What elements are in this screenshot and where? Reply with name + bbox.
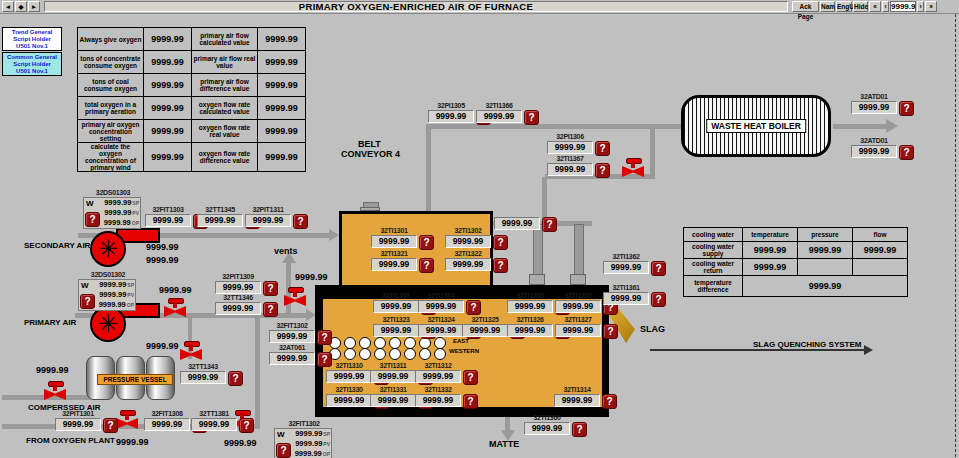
instrument-tag: 32AT061 — [269, 344, 315, 351]
value-display[interactable]: 9999.99 — [373, 324, 419, 337]
value-readout: 9999.99 — [159, 285, 192, 295]
common-general-script-holder[interactable]: Common General Script Holder U501 Nov.1 — [2, 52, 62, 76]
table-header: flow — [853, 228, 908, 242]
instrument-32TI1326: 32TI13269999.99? — [507, 316, 553, 342]
pager-prev-button[interactable]: ‹ — [882, 1, 889, 12]
instrument-32PI1305: 32PI13059999.99? — [428, 102, 474, 128]
instrument-tag: 32TI1330 — [326, 386, 372, 393]
value-display[interactable]: 9999.99 — [55, 418, 101, 431]
trend-general-script-holder[interactable]: Trend General Script Holder U501 Nov.1 — [2, 27, 62, 51]
instrument-32TI1311: 32TI13119999.99? — [370, 362, 416, 388]
holder-line: U501 Nov.1 — [3, 68, 61, 75]
value-display[interactable]: 9999.99 — [555, 300, 601, 313]
alarm-indicator[interactable]: ? — [419, 235, 434, 250]
uptake-flange — [529, 274, 545, 285]
oxygen-riser-pipe — [255, 316, 260, 429]
label-vents: vents — [274, 246, 298, 256]
alarm-indicator[interactable]: ? — [899, 145, 914, 160]
instrument-tag: 32TI1360 — [524, 414, 570, 421]
value-display[interactable]: 9999.99 — [462, 324, 508, 337]
pager-first-button[interactable]: « — [869, 1, 881, 12]
screen-edge-dashes — [955, 14, 956, 457]
table-label: cooling water return — [684, 259, 743, 276]
instrument-32TI1331: 32TI13319999.99? — [370, 386, 416, 412]
label-matte: MATTE — [489, 439, 519, 449]
instrument-32FIT1308: 32FIT13089999.99? — [144, 410, 190, 436]
controller-32DS01303[interactable]: 32DS01303W9999.99SP9999.99PV9999.99OP? — [83, 189, 143, 229]
oxygen-table-row: total oxygen in a primary aeration9999.9… — [78, 97, 306, 120]
instrument-tag: 32TT1381 — [191, 410, 237, 417]
controller-tag: 32DS01302 — [78, 271, 138, 278]
oxygen-table-row: calculate the oxygen concentration of pr… — [78, 143, 306, 172]
table-value: 9999.99 — [258, 143, 306, 172]
label-slag: SLAG — [640, 324, 665, 334]
table-value: 9999.99 — [258, 51, 306, 74]
table-value: 9999.99 — [853, 242, 908, 259]
table-value: 9999.99 — [144, 74, 192, 97]
alarm-indicator[interactable]: ? — [317, 330, 332, 345]
instrument-32TT1381: 32TT13819999.99? — [191, 410, 237, 436]
instrument-32TI1321: 32TI13219999.99? — [371, 250, 417, 276]
holder-line: Script Holder — [3, 36, 61, 43]
label-belt-2: CONVEYOR 4 — [341, 149, 400, 159]
instrument-tag: 32TI1367 — [547, 155, 593, 162]
title-bar: ◄ ◆ ► PRIMARY OXYGEN-ENRICHED AIR OF FUR… — [0, 0, 959, 14]
table-value: 9999.99 — [743, 242, 798, 259]
valve-icon[interactable] — [180, 341, 202, 360]
instrument-tag: 32TI1323 — [373, 316, 419, 323]
alarm-indicator[interactable]: ? — [228, 371, 243, 386]
instrument-32TI1304: 32TI13049999.99? — [418, 292, 464, 318]
cooling-water-table: cooling watertemperaturepressureflowcool… — [683, 227, 908, 297]
instrument-32AT061: 32AT0619999.99? — [269, 344, 315, 370]
value-display[interactable]: 9999.99 — [851, 145, 897, 158]
controller-32DS01302[interactable]: 32DS01302W9999.99SP9999.99PV9999.99OP? — [78, 271, 138, 311]
instrument-tag: 32FIT1303 — [145, 206, 191, 213]
instrument-tag: 32TI1322 — [445, 250, 491, 257]
label-belt-1: BELT — [358, 139, 381, 149]
instrument-tag: 32TI1361 — [603, 284, 649, 291]
engu-button[interactable]: EngU — [836, 1, 852, 12]
instrument-32TT1346: 32TT13469999.99? — [215, 294, 261, 320]
value-display[interactable]: 9999.99 — [476, 110, 522, 123]
instrument-32TI1332: 32TI13329999.99? — [415, 386, 461, 412]
holder-line: Common General — [3, 54, 61, 61]
cooling-table-row: temperature difference9999.99 — [684, 276, 908, 297]
alarm-indicator[interactable]: ? — [239, 418, 254, 433]
table-label: primary air flow real value — [192, 51, 258, 74]
value-display[interactable]: 9999.99 — [191, 418, 237, 431]
oxygen-table-row: tons of coal consume oxygen9999.99primar… — [78, 74, 306, 97]
feed-pipe — [426, 124, 431, 214]
table-header: cooling water — [684, 228, 743, 242]
alarm-indicator[interactable]: ? — [651, 261, 666, 276]
table-label: primary air oxygen concentration setting — [78, 120, 144, 143]
nam-button[interactable]: Nam — [820, 1, 835, 12]
tuyere-port — [344, 348, 356, 360]
instrument-tag: 32TI1325 — [462, 316, 508, 323]
alarm-indicator[interactable]: ? — [419, 258, 434, 273]
alarm-indicator[interactable]: ? — [85, 212, 100, 227]
tuyere-port — [404, 348, 416, 360]
instrument-tag: 32TI1310 — [326, 362, 372, 369]
instrument-32TI1367: 32TI13679999.99? — [547, 155, 593, 181]
table-label: oxygen flow rate real value — [192, 120, 258, 143]
alarm-indicator[interactable]: ? — [595, 163, 610, 178]
instrument-tag: 32PIT1301 — [55, 410, 101, 417]
instrument-tag: 32TT1345 — [197, 206, 243, 213]
table-value: 9999.99 — [798, 242, 853, 259]
pipe — [650, 127, 655, 179]
instrument-32TI1324: 32TI13249999.99? — [418, 316, 464, 342]
tuyere-port — [419, 348, 431, 360]
instrument-tag: 32PIT1309 — [215, 273, 261, 280]
table-label: primary air flow calculated value — [192, 28, 258, 51]
instrument-untagged: 9999.99? — [494, 217, 540, 235]
value-display[interactable]: 9999.99 — [373, 300, 419, 313]
alarm-indicator[interactable]: ? — [103, 418, 118, 433]
table-value: 9999.99 — [144, 97, 192, 120]
value-readout: 9999.99 — [295, 272, 328, 282]
instrument-tag: 32TI1321 — [371, 250, 417, 257]
page-title: PRIMARY OXYGEN-ENRICHED AIR OF FURNACE — [44, 1, 788, 12]
table-label: tons of coal consume oxygen — [78, 74, 144, 97]
value-display[interactable]: 9999.99 — [445, 258, 491, 271]
table-value: 9999.99 — [144, 143, 192, 172]
holder-line: U501 Nov.1 — [3, 43, 61, 50]
cooling-table-row: cooling water return9999.99 — [684, 259, 908, 276]
value-display[interactable]: 9999.99 — [524, 422, 570, 435]
label-western: WESTERN — [449, 348, 479, 354]
table-label: tons of concentrate consume oxygen — [78, 51, 144, 74]
table-value: 9999.99 — [743, 259, 798, 276]
oxygen-summary-table: Always give oxygen9999.99primary air flo… — [77, 27, 306, 172]
flow-arrow-icon — [329, 229, 339, 241]
oxygen-table-row: Always give oxygen9999.99primary air flo… — [78, 28, 306, 51]
table-label: oxygen flow rate difference value — [192, 143, 258, 172]
value-display[interactable]: 9999.99 — [371, 258, 417, 271]
alarm-indicator[interactable]: ? — [263, 281, 278, 296]
controller-tag: 32DS01303 — [83, 189, 143, 196]
label-pressure-vessel: PRESSURE VESSEL — [97, 374, 173, 385]
value-display[interactable]: 9999.99 — [555, 324, 601, 337]
value-readout: 9999.99 — [36, 365, 69, 375]
instrument-tag: 32TI1304 — [418, 292, 464, 299]
instrument-tag: 32TI1324 — [418, 316, 464, 323]
table-value: 9999.99 — [258, 120, 306, 143]
instrument-32TT1345: 32TT13459999.99? — [197, 206, 243, 232]
alarm-indicator[interactable]: ? — [603, 324, 618, 339]
table-value: 9999.99 — [144, 28, 192, 51]
instrument-tag: 32PI1305 — [428, 102, 474, 109]
instrument-32ATD01: 32ATD019999.99? — [851, 137, 897, 163]
value-display[interactable]: 9999.99 — [144, 418, 190, 431]
value-display[interactable]: 9999.99 — [547, 141, 593, 154]
tuyere-port — [434, 348, 446, 360]
tuyere-port — [359, 348, 371, 360]
label-primary-air: PRIMARY AIR — [24, 318, 76, 327]
alarm-indicator[interactable]: ? — [463, 370, 478, 385]
value-readout: 9999.99 — [116, 437, 149, 447]
valve-icon[interactable] — [622, 158, 644, 177]
value-display[interactable]: 9999.99 — [603, 292, 649, 305]
instrument-32TT1343: 32TT13439999.99? — [180, 363, 226, 389]
value-display[interactable]: 9999.99 — [603, 261, 649, 274]
nav-next-page-button[interactable]: ► — [28, 1, 40, 12]
table-label: Always give oxygen — [78, 28, 144, 51]
alarm-indicator[interactable]: ? — [524, 110, 539, 125]
table-value: 9999.99 — [258, 28, 306, 51]
value-display[interactable]: 9999.99 — [494, 217, 540, 230]
alarm-indicator[interactable]: ? — [293, 214, 308, 229]
scada-screen: ◄ ◆ ► PRIMARY OXYGEN-ENRICHED AIR OF FUR… — [0, 0, 959, 458]
label-from-oxygen-plant: FROM OXYGEN PLANT — [26, 436, 115, 445]
value-display[interactable]: 9999.99 — [370, 370, 416, 383]
alarm-indicator[interactable]: ? — [493, 235, 508, 250]
valve-icon[interactable] — [116, 410, 138, 429]
valve-icon[interactable] — [44, 381, 66, 400]
cooling-table-row: cooling water supply9999.999999.999999.9… — [684, 242, 908, 259]
instrument-tag: 32TI1326 — [507, 316, 553, 323]
slag-line — [650, 349, 866, 351]
instrument-32TI1330: 32TI13309999.99? — [326, 386, 372, 412]
fan-wheel: ✳ — [90, 306, 126, 342]
instrument-tag: 32TI1311 — [370, 362, 416, 369]
alarm-indicator[interactable]: ? — [572, 422, 587, 437]
table-label: oxygen flow rate calculated value — [192, 97, 258, 120]
alarm-indicator[interactable]: ? — [899, 101, 914, 116]
instrument-32FIT1303: 32FIT13039999.99? — [145, 206, 191, 232]
instrument-tag: 32TI1312 — [415, 362, 461, 369]
table-value: 9999.99 — [258, 74, 306, 97]
hide-button[interactable]: Hide — [853, 1, 868, 12]
value-display[interactable]: 9999.99 — [418, 324, 464, 337]
controller-faceplate[interactable]: W9999.99SP9999.99PV9999.99OP? — [274, 428, 332, 458]
alarm-indicator[interactable]: ? — [80, 294, 95, 309]
instrument-tag: 32TI1331 — [370, 386, 416, 393]
value-display[interactable]: 9999.99 — [415, 394, 461, 407]
instrument-tag: 32TT1343 — [180, 363, 226, 370]
alarm-indicator[interactable]: ? — [651, 292, 666, 307]
alarm-indicator[interactable]: ? — [602, 394, 617, 409]
instrument-32TI1312: 32TI13129999.99? — [415, 362, 461, 388]
instrument-32TI1360: 32TI13609999.99? — [524, 414, 570, 440]
table-header: temperature — [743, 228, 798, 242]
value-display[interactable]: 9999.99 — [245, 214, 291, 227]
label-secondary-air: SECONDARY AIR — [24, 241, 90, 250]
instrument-tag: 32ATD01 — [851, 93, 897, 100]
instrument-32TI1366: 32TI13669999.99? — [476, 102, 522, 128]
value-display[interactable]: 9999.99 — [215, 281, 261, 294]
instrument-tag: 32TI1362 — [603, 253, 649, 260]
boiler-outlet-pipe — [833, 124, 888, 129]
table-label: total oxygen in a primary aeration — [78, 97, 144, 120]
cooling-table-header: cooling watertemperaturepressureflow — [684, 228, 908, 242]
value-display[interactable]: 9999.99 — [428, 110, 474, 123]
controller-mode: W — [277, 430, 285, 439]
instrument-32TI1303: 32TI13039999.99? — [373, 292, 419, 318]
value-display[interactable]: 9999.99 — [370, 394, 416, 407]
controller-tag: 32FIT1302 — [274, 420, 334, 427]
table-value: 9999.99 — [144, 51, 192, 74]
value-display[interactable]: 9999.99 — [180, 371, 226, 384]
value-display[interactable]: 9999.99 — [145, 214, 191, 227]
instrument-32TI1310: 32TI13109999.99? — [326, 362, 372, 388]
controller-mode: W — [81, 281, 89, 290]
alarm-indicator[interactable]: ? — [466, 300, 481, 315]
oxygen-table-row: tons of concentrate consume oxygen9999.9… — [78, 51, 306, 74]
instrument-tag: 32ATD01 — [851, 137, 897, 144]
alarm-indicator[interactable]: ? — [463, 394, 478, 409]
instrument-32ATD01: 32ATD019999.99? — [851, 93, 897, 119]
instrument-tag: 32TI1301 — [371, 227, 417, 234]
pager-last-button[interactable]: » — [925, 1, 937, 12]
waste-heat-boiler: WASTE HEAT BOILER — [681, 95, 831, 157]
instrument-32TI1314: 32TI13149999.99? — [554, 386, 600, 412]
table-header: pressure — [798, 228, 853, 242]
instrument-32TI1322: 32TI13229999.99? — [445, 250, 491, 276]
instrument-32TI1323: 32TI13239999.99? — [373, 316, 419, 342]
value-readout: 9999.99 — [224, 438, 257, 448]
label-waste-heat-boiler: WASTE HEAT BOILER — [706, 119, 806, 133]
instrument-tag: 32TI1314 — [554, 386, 600, 393]
controller-32FIT1302[interactable]: 32FIT1302W9999.99SP9999.99PV9999.99OP? — [274, 420, 334, 458]
nav-prev-page-button[interactable]: ◄ — [2, 1, 14, 12]
pager-next-button[interactable]: › — [917, 1, 924, 12]
instrument-32TI1305: 32TI13059999.99? — [507, 292, 553, 318]
alarm-indicator[interactable]: ? — [493, 258, 508, 273]
slag-arrow-icon — [864, 345, 873, 355]
value-display[interactable]: 9999.99 — [326, 394, 372, 407]
valve-icon[interactable] — [284, 287, 306, 306]
instrument-32PIT1311: 32PIT13119999.99? — [245, 206, 291, 232]
uptake-flange — [570, 274, 586, 285]
alarm-indicator[interactable]: ? — [542, 217, 557, 232]
flow-arrow-icon — [886, 119, 898, 133]
table-label: primary air flow difference value — [192, 74, 258, 97]
instrument-tag: 32TI1366 — [476, 102, 522, 109]
value-display[interactable]: 9999.99 — [554, 394, 600, 407]
instrument-tag: 32TI1302 — [445, 227, 491, 234]
value-display[interactable]: 9999.99 — [507, 324, 553, 337]
table-value: 9999.99 — [743, 276, 908, 297]
oxygen-table-row: primary air oxygen concentration setting… — [78, 120, 306, 143]
instrument-tag: 32TI1307 — [555, 292, 601, 299]
controller-faceplate[interactable]: W9999.99SP9999.99PV9999.99OP? — [83, 197, 141, 229]
table-label: cooling water supply — [684, 242, 743, 259]
instrument-32TI1361: 32TI13619999.99? — [603, 284, 649, 310]
instrument-32TI1362: 32TI13629999.99? — [603, 253, 649, 279]
alarm-indicator[interactable]: ? — [276, 443, 291, 458]
controller-faceplate[interactable]: W9999.99SP9999.99PV9999.99OP? — [78, 279, 136, 311]
instrument-32TI1327: 32TI13279999.99? — [555, 316, 601, 342]
instrument-32TI1325: 32TI13259999.99? — [462, 316, 508, 342]
value-display[interactable]: 9999.99 — [269, 352, 315, 365]
label-slag-quenching: SLAG QUENCHING SYSTEM — [753, 340, 861, 349]
instrument-tag: 32TI1332 — [415, 386, 461, 393]
value-readout: 9999.99 — [146, 242, 179, 252]
instrument-tag: 32TT1346 — [215, 294, 261, 301]
ack-page-button[interactable]: Ack Page — [792, 1, 819, 12]
value-readout: 9999.99 — [146, 255, 179, 265]
instrument-tag: 32TI1303 — [373, 292, 419, 299]
instrument-tag: 32PI1306 — [547, 133, 593, 140]
table-label: calculate the oxygen concentration of pr… — [78, 143, 144, 172]
table-label: temperature difference — [684, 276, 743, 297]
value-display[interactable]: 9999.99 — [547, 163, 593, 176]
tuyere-port — [389, 348, 401, 360]
table-value: 9999.99 — [144, 120, 192, 143]
instrument-tag: 32FIT1302 — [269, 322, 315, 329]
nav-home-button[interactable]: ◆ — [15, 1, 27, 12]
instrument-tag: 32FIT1308 — [144, 410, 190, 417]
value-display[interactable]: 9999.99 — [507, 300, 553, 313]
instrument-tag: 32TI1305 — [507, 292, 553, 299]
value-display[interactable]: 9999.99 — [415, 370, 461, 383]
holder-line: Trend General — [3, 29, 61, 36]
value-readout: 9999.99 — [146, 341, 179, 351]
value-display[interactable]: 9999.99 — [326, 370, 372, 383]
value-display[interactable]: 9999.99 — [197, 214, 243, 227]
tuyere-port — [374, 348, 386, 360]
holder-line: Script Holder — [3, 61, 61, 68]
controller-mode: W — [86, 199, 94, 208]
valve-icon[interactable] — [164, 298, 186, 317]
value-display[interactable]: 9999.99 — [269, 330, 315, 343]
alarm-indicator[interactable]: ? — [263, 302, 278, 317]
alarm-indicator[interactable]: ? — [595, 141, 610, 156]
fan-wheel: ✳ — [90, 231, 126, 267]
instrument-tag: 32PIT1311 — [245, 206, 291, 213]
instrument-tag: 32TI1327 — [555, 316, 601, 323]
instrument-32TI1307: 32TI13079999.99? — [555, 292, 601, 318]
value-display[interactable]: 9999.99 — [371, 235, 417, 248]
value-display[interactable]: 9999.99 — [418, 300, 464, 313]
table-value: 9999.99 — [258, 97, 306, 120]
value-display[interactable]: 9999.99 — [445, 235, 491, 248]
instrument-32PIT1301: 32PIT13019999.99? — [55, 410, 101, 436]
value-display[interactable]: 9999.99 — [851, 101, 897, 114]
pager-value-field[interactable]: 9999.9 — [890, 1, 916, 12]
value-display[interactable]: 9999.99 — [215, 302, 261, 315]
table-value — [853, 259, 908, 276]
table-value — [798, 259, 853, 276]
